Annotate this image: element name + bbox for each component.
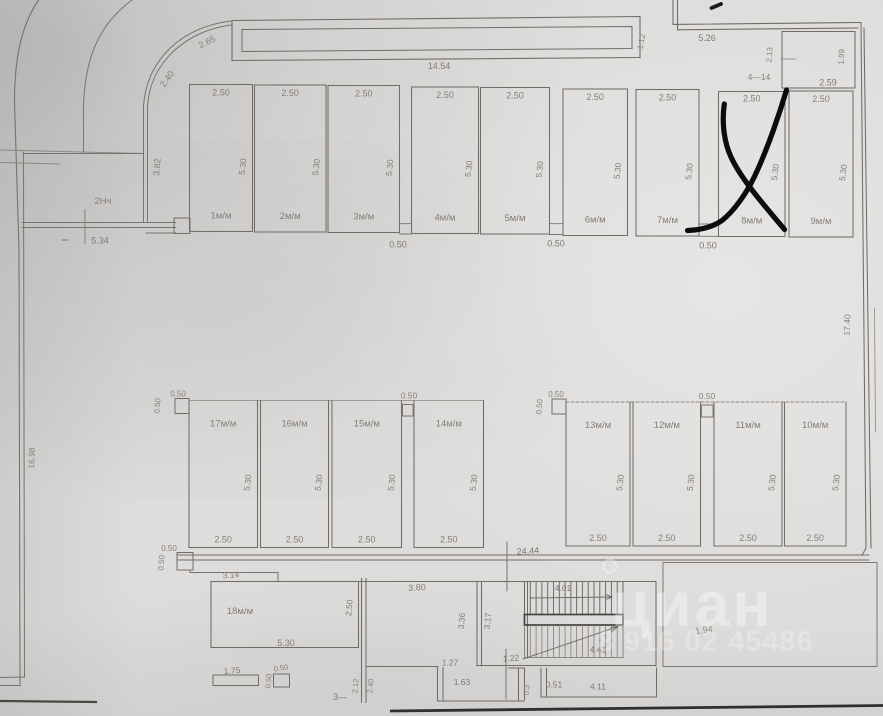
svg-text:10м/м: 10м/м xyxy=(802,420,828,431)
svg-text:17м/м: 17м/м xyxy=(210,419,236,430)
svg-text:14м/м: 14м/м xyxy=(436,419,462,430)
svg-text:0.50: 0.50 xyxy=(699,241,717,251)
svg-text:2.50: 2.50 xyxy=(358,535,376,545)
svg-text:5.30: 5.30 xyxy=(614,474,626,492)
svg-text:5м/м: 5м/м xyxy=(505,213,526,224)
svg-text:12м/м: 12м/м xyxy=(654,420,680,431)
svg-text:5.30: 5.30 xyxy=(242,474,254,492)
svg-text:5.30: 5.30 xyxy=(310,158,322,176)
svg-text:4м/м: 4м/м xyxy=(435,213,456,224)
svg-text:5.30: 5.30 xyxy=(386,474,398,492)
svg-text:9м/м: 9м/м xyxy=(811,216,832,227)
svg-text:1.27: 1.27 xyxy=(442,658,459,668)
svg-text:5.30: 5.30 xyxy=(463,160,475,178)
svg-text:2.50: 2.50 xyxy=(355,89,373,99)
svg-text:2Нч: 2Нч xyxy=(94,196,111,207)
svg-text:0.50: 0.50 xyxy=(401,391,418,401)
svg-text:3.17: 3.17 xyxy=(482,612,493,630)
svg-text:16м/м: 16м/м xyxy=(281,419,307,430)
svg-text:2.50: 2.50 xyxy=(589,533,607,543)
svg-text:5.30: 5.30 xyxy=(837,164,849,182)
svg-text:16.98: 16.98 xyxy=(26,447,37,469)
svg-text:2м/м: 2м/м xyxy=(280,211,301,222)
svg-text:17.40: 17.40 xyxy=(842,314,853,336)
svg-text:14.54: 14.54 xyxy=(428,61,451,71)
svg-text:1м/м: 1м/м xyxy=(211,211,232,222)
svg-text:3м/м: 3м/м xyxy=(353,212,374,223)
svg-text:1.99: 1.99 xyxy=(837,48,847,65)
svg-text:5.30: 5.30 xyxy=(534,160,546,178)
svg-text:5.26: 5.26 xyxy=(698,33,716,43)
svg-text:5.30: 5.30 xyxy=(612,162,624,180)
svg-text:0.51: 0.51 xyxy=(546,680,563,690)
svg-text:5.30: 5.30 xyxy=(830,474,842,492)
svg-text:2.50: 2.50 xyxy=(343,599,354,617)
svg-text:5.30: 5.30 xyxy=(769,163,781,181)
svg-text:5.30: 5.30 xyxy=(237,158,249,176)
svg-text:0.50: 0.50 xyxy=(156,554,166,571)
svg-text:0.50: 0.50 xyxy=(170,390,186,399)
svg-text:3.80: 3.80 xyxy=(408,582,426,593)
svg-text:5.30: 5.30 xyxy=(683,162,695,180)
svg-text:2.50: 2.50 xyxy=(812,94,830,104)
svg-text:0.50: 0.50 xyxy=(547,239,565,249)
svg-text:5.30: 5.30 xyxy=(313,474,325,492)
svg-text:13м/м: 13м/м xyxy=(585,420,611,431)
svg-text:8м/м: 8м/м xyxy=(741,216,762,227)
svg-text:2.40: 2.40 xyxy=(365,678,375,693)
svg-text:7м/м: 7м/м xyxy=(657,215,678,226)
svg-text:1.75: 1.75 xyxy=(223,665,240,676)
svg-text:8 916 02 45486: 8 916 02 45486 xyxy=(598,626,814,658)
svg-text:3.36: 3.36 xyxy=(456,612,467,630)
svg-text:2.50: 2.50 xyxy=(659,93,677,103)
svg-text:3.82: 3.82 xyxy=(151,158,162,176)
svg-text:5.30: 5.30 xyxy=(277,638,295,648)
svg-text:2.13: 2.13 xyxy=(764,46,774,63)
svg-text:1.22: 1.22 xyxy=(502,652,519,663)
svg-text:4.01: 4.01 xyxy=(555,583,572,593)
svg-text:5.30: 5.30 xyxy=(468,474,480,492)
svg-text:3—: 3— xyxy=(333,692,347,702)
svg-text:2.50: 2.50 xyxy=(286,535,304,545)
svg-text:11м/м: 11м/м xyxy=(735,420,761,431)
svg-text:0.50: 0.50 xyxy=(152,397,162,414)
svg-text:15м/м: 15м/м xyxy=(354,419,380,430)
svg-text:2.12: 2.12 xyxy=(350,678,360,693)
svg-text:0.50: 0.50 xyxy=(548,390,564,399)
svg-text:2.50: 2.50 xyxy=(586,92,604,102)
svg-text:0.50: 0.50 xyxy=(161,544,177,553)
svg-text:2.50: 2.50 xyxy=(806,533,824,543)
svg-text:2.50: 2.50 xyxy=(436,90,454,100)
svg-text:2.50: 2.50 xyxy=(281,88,299,98)
svg-text:2.50: 2.50 xyxy=(212,88,230,98)
svg-text:2.50: 2.50 xyxy=(214,535,232,545)
svg-text:2.50: 2.50 xyxy=(658,533,676,543)
svg-text:4.11: 4.11 xyxy=(590,682,606,692)
svg-text:1.63: 1.63 xyxy=(454,677,471,687)
svg-text:4—14: 4—14 xyxy=(748,72,771,82)
svg-text:2.50: 2.50 xyxy=(440,535,458,545)
svg-text:5.30: 5.30 xyxy=(384,159,396,177)
svg-text:3.14: 3.14 xyxy=(222,570,239,581)
svg-text:5.34: 5.34 xyxy=(91,236,109,246)
svg-text:5.30: 5.30 xyxy=(766,474,778,492)
svg-text:0.50: 0.50 xyxy=(699,391,716,401)
svg-text:2.59: 2.59 xyxy=(819,78,837,88)
svg-text:2.50: 2.50 xyxy=(743,94,761,104)
svg-text:0.50: 0.50 xyxy=(534,398,544,415)
svg-text:18м/м: 18м/м xyxy=(227,606,253,617)
svg-text:0.50: 0.50 xyxy=(263,673,273,688)
svg-text:5.30: 5.30 xyxy=(685,474,697,492)
svg-text:2.50: 2.50 xyxy=(506,91,524,101)
svg-text:0.3: 0.3 xyxy=(522,684,532,695)
svg-text:24.44: 24.44 xyxy=(516,545,539,557)
svg-text:6м/м: 6м/м xyxy=(585,215,606,226)
svg-text:2.50: 2.50 xyxy=(739,533,757,543)
svg-text:0.50: 0.50 xyxy=(389,240,407,250)
